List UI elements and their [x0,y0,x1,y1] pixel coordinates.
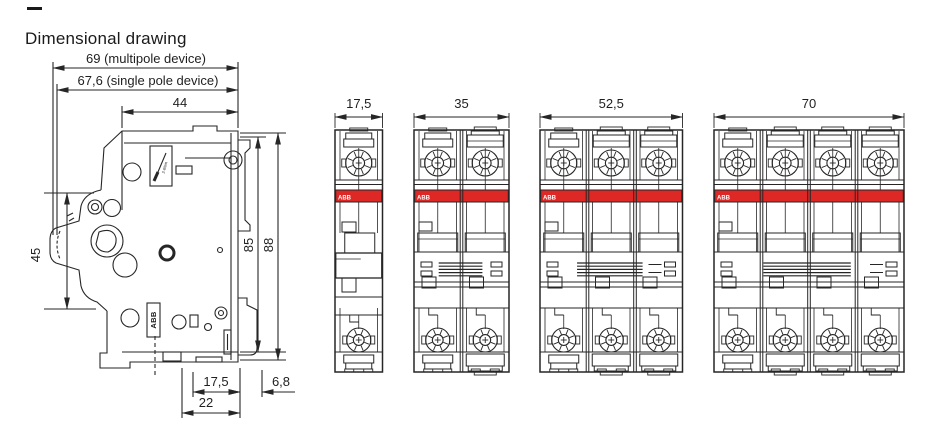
dimensional-drawing-svg: 69 (multipole device) 67,6 (single pole … [0,0,938,445]
front-view-width-label: 52,5 [599,96,624,111]
dimensional-drawing-page: Dimensional drawing [0,0,938,445]
abb-brand-label: ABB [338,196,352,202]
dim-label-front-height: 45 [28,248,43,262]
dim-label-body-depth: 44 [173,95,187,110]
front-views: 17,5ABB35ABB52,5ABB70ABB [335,96,904,375]
dim-label-height-88: 88 [261,238,276,252]
abb-brand-label: ABB [543,196,557,202]
abb-brand-label: ABB [417,196,431,202]
front-view-3-pole: 52,5ABB [540,96,683,375]
abb-red-stripe [541,190,682,202]
abb-red-stripe [715,190,904,202]
abb-brand-label: ABB [717,196,731,202]
side-view-details [57,131,257,376]
dim-label-clip-6-8: 6,8 [272,374,290,389]
dim-label-rail-17-5: 17,5 [203,374,228,389]
front-view-4-pole: 70ABB [714,96,904,375]
dim-label-depth-singlepole: 67,6 (single pole device) [78,73,219,88]
front-view-width-label: 70 [802,96,816,111]
dim-label-height-85: 85 [241,238,256,252]
side-view-drawing: 69 (multipole device) 67,6 (single pole … [28,51,295,418]
abb-side-logo: ABB [149,311,158,328]
dim-label-rail-22: 22 [199,395,213,410]
front-view-1-pole: 17,5ABB [335,96,383,372]
front-view-width-label: 17,5 [346,96,371,111]
side-view-outline [50,126,238,368]
front-view-width-label: 35 [454,96,468,111]
dim-label-depth-multipole: 69 (multipole device) [86,51,206,66]
front-view-2-pole: 35ABB [414,96,509,375]
